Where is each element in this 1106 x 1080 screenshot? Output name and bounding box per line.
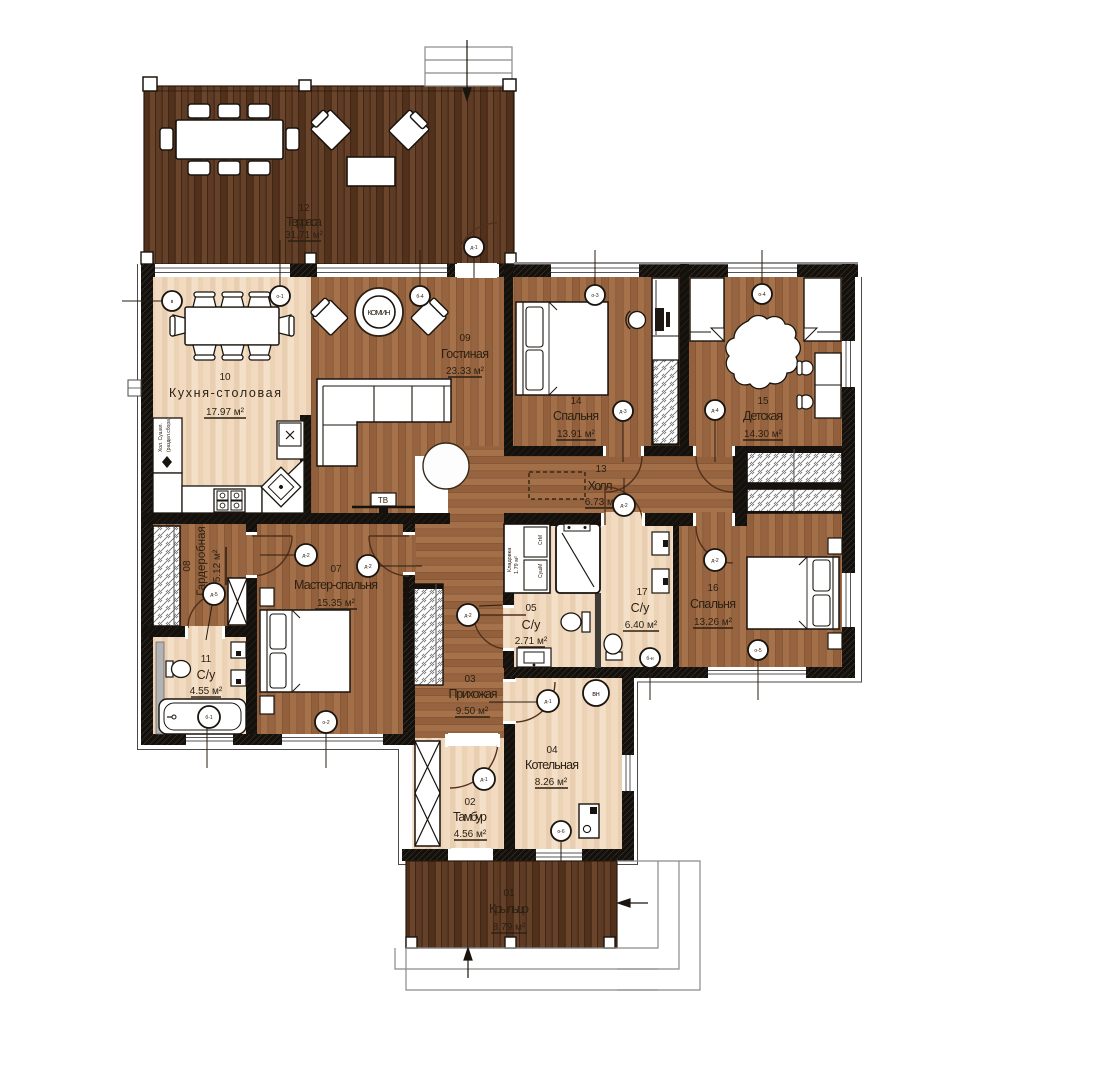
svg-text:Спальня: Спальня <box>690 597 736 611</box>
svg-text:04: 04 <box>546 745 558 756</box>
svg-text:15.35 м²: 15.35 м² <box>317 598 356 609</box>
svg-text:11: 11 <box>201 654 212 665</box>
svg-text:5.12 м²: 5.12 м² <box>212 549 223 582</box>
svg-text:СушМ: СушМ <box>538 564 544 578</box>
svg-text:14: 14 <box>570 396 582 407</box>
svg-text:о-1: о-1 <box>276 294 283 300</box>
svg-text:Гостиная: Гостиная <box>441 347 489 361</box>
svg-text:Крыльцо: Крыльцо <box>489 902 529 916</box>
svg-text:д-3: д-3 <box>619 409 627 415</box>
svg-text:Прихожая: Прихожая <box>449 687 498 701</box>
svg-text:о-3: о-3 <box>591 293 598 299</box>
svg-text:12: 12 <box>298 203 310 214</box>
svg-text:о-6: о-6 <box>557 829 564 835</box>
svg-text:10: 10 <box>219 372 231 383</box>
svg-text:Хол. Сушил.: Хол. Сушил. <box>158 423 164 452</box>
svg-text:Терраса: Терраса <box>286 215 322 229</box>
svg-text:(раздел.сбора): (раздел.сбора) <box>166 417 172 452</box>
svg-text:С/у: С/у <box>197 668 217 682</box>
svg-text:СтМ: СтМ <box>538 535 544 545</box>
svg-text:д-2: д-2 <box>620 503 628 509</box>
svg-text:4.56 м²: 4.56 м² <box>454 829 487 840</box>
svg-text:14.30 м²: 14.30 м² <box>744 429 783 440</box>
svg-text:б-1: б-1 <box>205 715 213 721</box>
svg-text:Холл: Холл <box>588 479 613 493</box>
svg-text:д-2: д-2 <box>302 553 310 559</box>
svg-text:б-4: б-4 <box>416 294 424 300</box>
svg-text:6.40 м²: 6.40 м² <box>625 620 658 631</box>
svg-text:д-2: д-2 <box>364 564 372 570</box>
svg-text:13: 13 <box>595 464 607 475</box>
svg-text:о-2: о-2 <box>322 720 329 726</box>
svg-text:ТВ: ТВ <box>378 496 388 505</box>
svg-text:01: 01 <box>503 888 515 899</box>
svg-text:о-5: о-5 <box>754 648 761 654</box>
svg-text:1.79 м²: 1.79 м² <box>514 556 520 574</box>
svg-text:в: в <box>171 299 174 305</box>
svg-text:16: 16 <box>707 583 719 594</box>
svg-text:вн: вн <box>592 691 600 698</box>
svg-text:С/у: С/у <box>522 618 542 632</box>
svg-text:о-4: о-4 <box>758 292 765 298</box>
svg-text:д-2: д-2 <box>711 558 719 564</box>
svg-text:05: 05 <box>525 603 537 614</box>
svg-text:08: 08 <box>182 560 193 572</box>
svg-text:д-4: д-4 <box>711 408 719 414</box>
svg-text:8.79 м²: 8.79 м² <box>493 922 526 933</box>
svg-text:02: 02 <box>464 797 476 808</box>
svg-text:Детская: Детская <box>743 409 783 423</box>
svg-text:Мастер-спальня: Мастер-спальня <box>294 578 378 592</box>
svg-text:б-н: б-н <box>646 656 654 662</box>
svg-text:д-1: д-1 <box>470 245 478 251</box>
svg-text:Котельная: Котельная <box>525 758 579 772</box>
svg-text:13.26 м²: 13.26 м² <box>694 617 733 628</box>
svg-text:9.50 м²: 9.50 м² <box>456 706 489 717</box>
svg-text:8.26 м²: 8.26 м² <box>535 777 568 788</box>
svg-text:д-2: д-2 <box>464 613 472 619</box>
svg-text:С/у: С/у <box>631 601 651 615</box>
svg-text:д-1: д-1 <box>480 777 488 783</box>
svg-text:15: 15 <box>757 396 769 407</box>
svg-text:д-5: д-5 <box>210 592 218 598</box>
svg-text:КОМИН: КОМИН <box>368 308 391 317</box>
svg-text:2.71 м²: 2.71 м² <box>515 636 548 647</box>
svg-text:31.71 м²: 31.71 м² <box>285 230 324 241</box>
svg-text:13.91 м²: 13.91 м² <box>557 429 596 440</box>
svg-text:Тамбур: Тамбур <box>453 810 487 824</box>
svg-text:д-1: д-1 <box>544 699 552 705</box>
svg-text:17: 17 <box>636 587 648 598</box>
svg-text:03: 03 <box>464 674 476 685</box>
svg-text:07: 07 <box>330 564 342 575</box>
svg-text:09: 09 <box>459 333 471 344</box>
svg-text:Спальня: Спальня <box>553 409 599 423</box>
svg-text:Кладовка: Кладовка <box>507 547 513 572</box>
svg-text:23.33 м²: 23.33 м² <box>446 366 485 377</box>
svg-text:17.97 м²: 17.97 м² <box>206 407 245 418</box>
svg-text:4.55 м²: 4.55 м² <box>190 686 223 697</box>
